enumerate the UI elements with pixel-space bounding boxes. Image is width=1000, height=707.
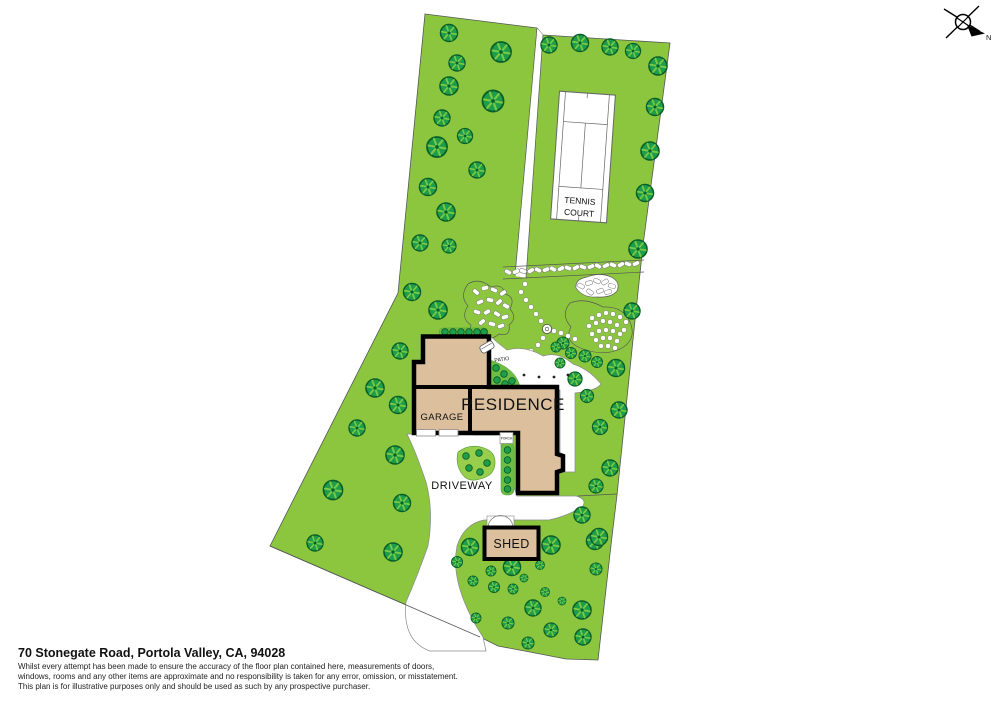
tree-icon <box>404 284 421 301</box>
tree-icon <box>647 99 664 116</box>
tree-icon <box>593 420 608 435</box>
tree-icon <box>491 42 511 62</box>
residence-label: RESIDENCE <box>461 395 565 414</box>
garage-door <box>417 430 436 437</box>
fountain-icon <box>542 324 551 333</box>
tree-icon <box>434 110 450 126</box>
tree-icon <box>602 39 618 55</box>
tree-icon <box>590 563 602 575</box>
site-plan-svg: TENNIS COURT <box>0 0 1000 707</box>
garage-label: GARAGE <box>420 412 463 423</box>
tree-icon <box>486 566 496 576</box>
site-plan-page: { "footer": { "title": "70 Stonegate Roa… <box>0 0 1000 707</box>
tree-icon <box>573 601 591 619</box>
tree-icon <box>390 397 407 414</box>
tree-icon <box>307 535 323 551</box>
tree-icon <box>394 495 411 512</box>
tree-icon <box>525 600 541 616</box>
tree-icon <box>489 582 500 593</box>
tree-icon <box>581 390 594 403</box>
tree-icon <box>649 57 667 75</box>
tree-icon <box>536 561 545 570</box>
tree-icon <box>541 37 557 53</box>
tree-icon <box>392 343 408 359</box>
tree-icon <box>568 372 582 386</box>
tree-icon <box>592 357 603 368</box>
tree-icon <box>508 584 518 594</box>
tree-icon <box>440 77 458 95</box>
tree-icon <box>429 301 447 319</box>
tree-icon <box>468 576 478 586</box>
driveway-island <box>457 446 495 480</box>
tree-icon <box>441 25 458 42</box>
tree-icon <box>589 479 603 493</box>
tennis-court: TENNIS COURT <box>551 91 616 223</box>
tree-icon <box>324 481 343 500</box>
tree-icon <box>452 557 463 568</box>
tree-icon <box>471 613 481 623</box>
tree-icon <box>469 162 485 178</box>
tree-icon <box>366 379 384 397</box>
tree-icon <box>591 529 608 546</box>
tree-icon <box>602 460 618 476</box>
disclaimer-line: windows, rooms and any other items are a… <box>18 672 538 682</box>
tree-icon <box>626 44 641 59</box>
garage-door <box>439 430 458 437</box>
tree-icon <box>574 507 590 523</box>
tree-icon <box>386 446 404 464</box>
tree-icon <box>449 55 465 71</box>
address-title: 70 Stonegate Road, Portola Valley, CA, 9… <box>18 646 538 660</box>
tree-icon <box>637 185 654 202</box>
tree-icon <box>420 179 437 196</box>
tree-icon <box>442 239 456 253</box>
tree-icon <box>629 240 647 258</box>
driveway-label: DRIVEWAY <box>431 480 493 492</box>
tree-icon <box>555 358 565 368</box>
tree-icon <box>575 629 591 645</box>
tree-icon <box>437 203 455 221</box>
porch-label: PORCH <box>501 437 513 441</box>
tree-icon <box>502 617 514 629</box>
tree-icon <box>624 303 640 319</box>
tree-icon <box>579 350 591 362</box>
tree-icon <box>542 536 560 554</box>
tree-icon <box>412 235 428 251</box>
tree-icon <box>462 539 479 556</box>
tree-icon <box>483 91 504 112</box>
tree-icon <box>427 137 447 157</box>
north-label: N <box>986 33 991 42</box>
north-arrow-compass-icon: N <box>944 6 991 42</box>
tree-icon <box>349 420 365 436</box>
disclaimer-line: This plan is for illustrative purposes o… <box>18 682 538 692</box>
tree-icon <box>544 623 558 637</box>
tree-icon <box>566 348 577 359</box>
tree-icon <box>558 597 566 605</box>
tree-icon <box>641 142 659 160</box>
tree-icon <box>551 342 561 352</box>
tree-icon <box>611 402 627 418</box>
plan-footer: 70 Stonegate Road, Portola Valley, CA, 9… <box>18 646 538 691</box>
tree-icon <box>458 129 473 144</box>
tree-icon <box>384 543 402 561</box>
tree-icon <box>608 360 625 377</box>
shed-label: SHED <box>493 537 529 551</box>
tree-icon <box>572 35 589 52</box>
tree-icon <box>504 559 521 576</box>
tree-icon <box>520 574 528 582</box>
tree-icon <box>541 588 550 597</box>
tennis-court-label-line2: COURT <box>564 207 595 219</box>
disclaimer-line: Whilst every attempt has been made to en… <box>18 662 538 672</box>
